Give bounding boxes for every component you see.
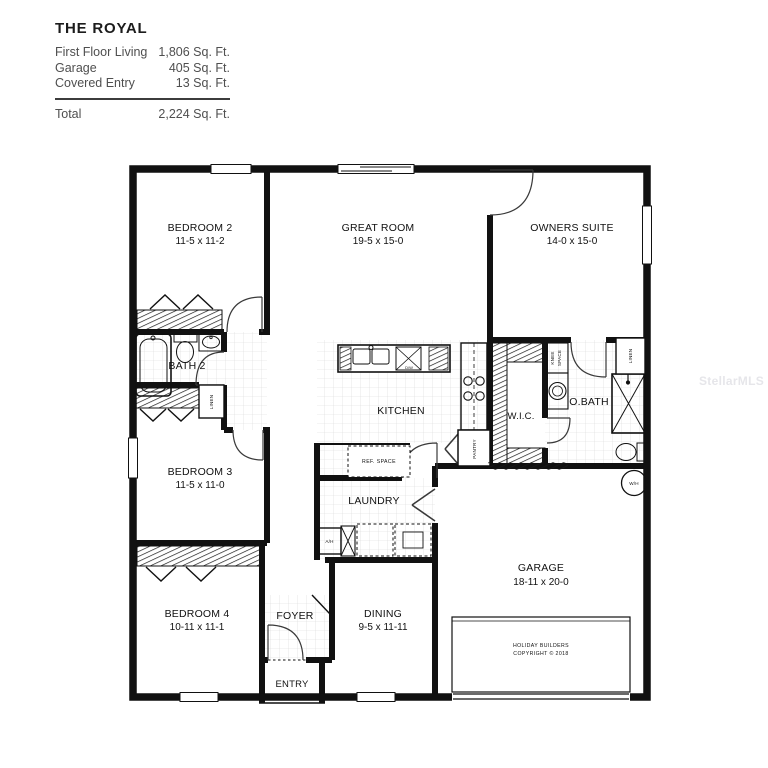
floor-plan-svg: BEDROOM 2 11-5 x 11-2 GREAT ROOM 19-5 x … [0, 0, 768, 768]
floor-plan-page: THE ROYAL First Floor Living 1,806 Sq. F… [0, 0, 768, 768]
label-ref-space: REF. SPACE [362, 459, 396, 465]
room-dims-bedroom4: 10-11 x 11-1 [170, 622, 225, 633]
garage-door-opening [452, 691, 630, 702]
room-dims-bedroom3: 11-5 x 11-0 [175, 480, 225, 491]
room-label-dining: DINING [364, 608, 402, 620]
room-dims-bedroom2: 11-5 x 11-2 [175, 236, 225, 247]
room-label-kitchen: KITCHEN [377, 405, 425, 417]
sliding-glass-door [338, 165, 414, 174]
label-pantry: PANTRY [472, 439, 477, 458]
label-ah: A/H [325, 539, 333, 544]
room-dims-great-room: 19-5 x 15-0 [353, 236, 404, 247]
room-label-obath: O.BATH [569, 396, 609, 408]
room-dims-owners-suite: 14-0 x 15-0 [547, 236, 598, 247]
label-copyright-1: HOLIDAY BUILDERS [513, 643, 569, 649]
room-label-laundry: LAUNDRY [348, 495, 399, 507]
label-knee-1: KNEE [550, 351, 555, 364]
label-linen-right: LINEN [628, 349, 633, 364]
label-wh: W/H [629, 481, 639, 486]
insulated-wall-hatch [488, 462, 568, 470]
room-label-foyer: FOYER [276, 610, 313, 622]
label-dw: D/W [405, 365, 413, 370]
label-copyright-2: COPYRIGHT © 2018 [513, 650, 568, 657]
label-linen-left: LINEN [209, 395, 214, 410]
room-label-bedroom3: BEDROOM 3 [168, 466, 233, 478]
room-label-owners-suite: OWNERS SUITE [530, 222, 614, 234]
room-label-garage: GARAGE [518, 562, 564, 574]
room-label-bedroom2: BEDROOM 2 [168, 222, 233, 234]
room-label-entry: ENTRY [275, 679, 308, 690]
room-label-bedroom4: BEDROOM 4 [165, 608, 230, 620]
room-label-bath2: BATH 2 [168, 360, 205, 372]
kitchen-island [338, 345, 450, 372]
room-label-great-room: GREAT ROOM [342, 222, 415, 234]
room-dims-dining: 9-5 x 11-11 [358, 622, 408, 633]
label-knee-2: SPACE [557, 350, 562, 366]
room-dims-garage: 18-11 x 20-0 [513, 577, 569, 588]
room-label-wic: W.I.C. [507, 411, 534, 422]
